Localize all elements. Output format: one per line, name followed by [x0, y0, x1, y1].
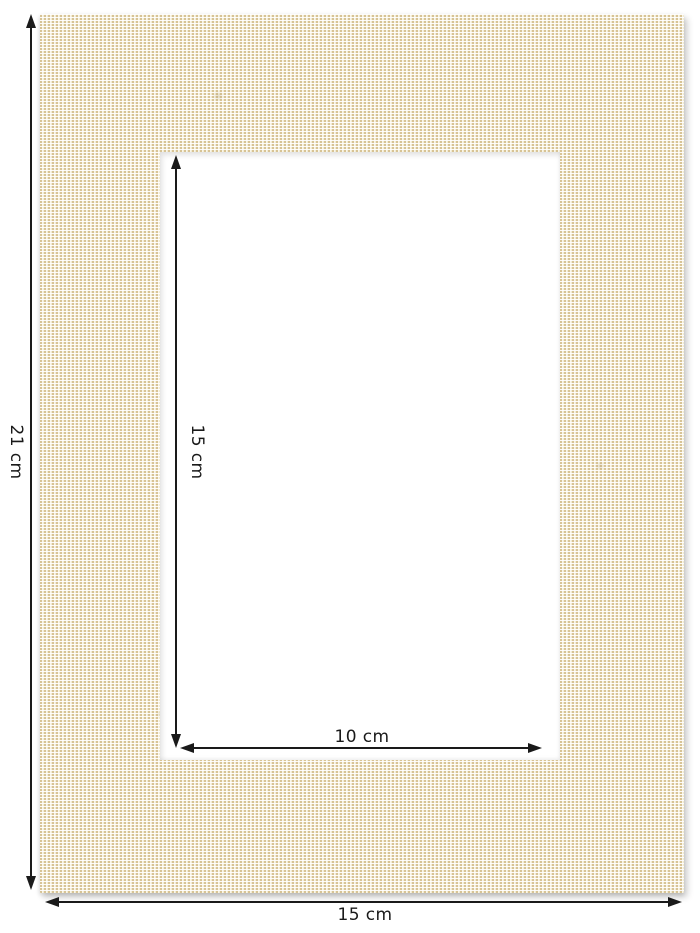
arrowhead-up-icon — [26, 14, 36, 28]
product-dimension-diagram: 21 cm 15 cm 15 cm 10 cm — [0, 0, 700, 933]
arrowhead-right-icon — [668, 897, 682, 907]
outer-height-dimension-arrow — [25, 14, 37, 890]
mat-window-opening — [160, 152, 560, 760]
passepartout-mat — [40, 14, 684, 893]
arrow-shaft — [175, 169, 178, 734]
window-height-label: 15 cm — [187, 425, 207, 480]
arrowhead-up-icon — [171, 155, 181, 169]
outer-height-label: 21 cm — [6, 425, 26, 480]
arrowhead-right-icon — [528, 743, 542, 753]
arrow-shaft — [59, 901, 668, 904]
arrowhead-left-icon — [180, 743, 194, 753]
window-width-label: 10 cm — [335, 727, 390, 747]
arrowhead-left-icon — [45, 897, 59, 907]
outer-width-label: 15 cm — [338, 905, 393, 925]
window-height-dimension-arrow — [170, 155, 182, 748]
arrow-shaft — [30, 28, 33, 876]
arrow-shaft — [194, 747, 528, 750]
arrowhead-down-icon — [26, 876, 36, 890]
